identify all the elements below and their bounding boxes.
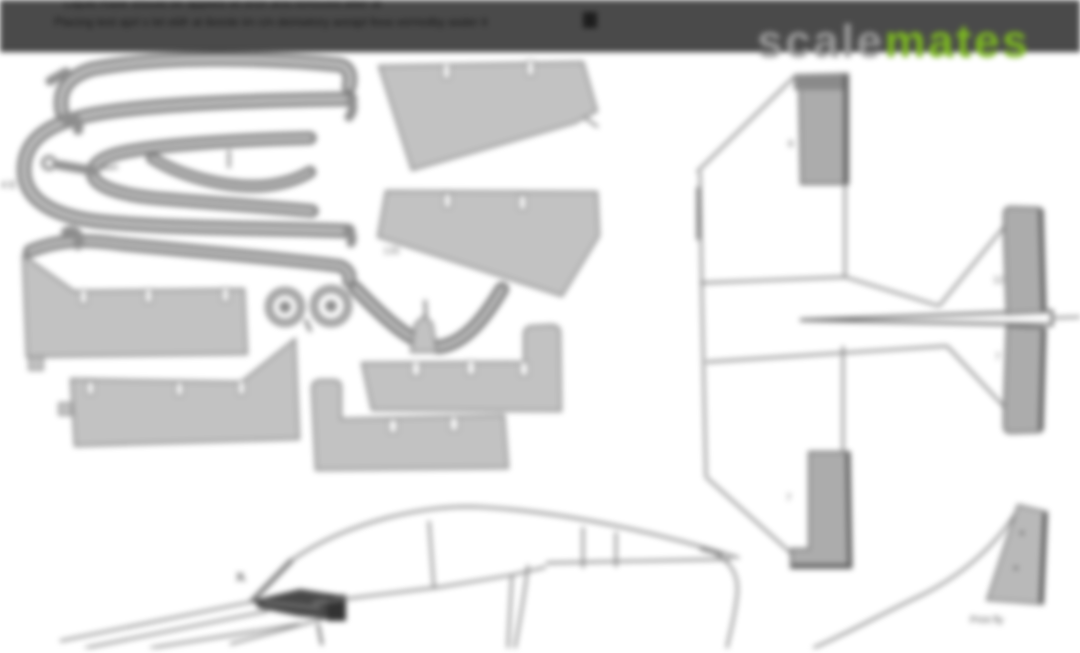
svg-text:Liquid mask should be applied: Liquid mask should be applied wt brsh an… [64, 0, 382, 10]
svg-text:135: 135 [383, 246, 400, 257]
svg-text:Placing test aprl s let ebfr a: Placing test aprl s let ebfr at iborde i… [54, 15, 488, 29]
svg-text:8: 8 [788, 139, 794, 150]
svg-text:4 E: 4 E [1, 180, 16, 191]
svg-text:7: 7 [995, 352, 1001, 363]
svg-text:7: 7 [786, 493, 792, 504]
svg-text:scalemates: scalemates [757, 15, 1030, 67]
svg-text:12: 12 [993, 275, 1005, 286]
svg-text:Print fly: Print fly [970, 615, 1003, 626]
